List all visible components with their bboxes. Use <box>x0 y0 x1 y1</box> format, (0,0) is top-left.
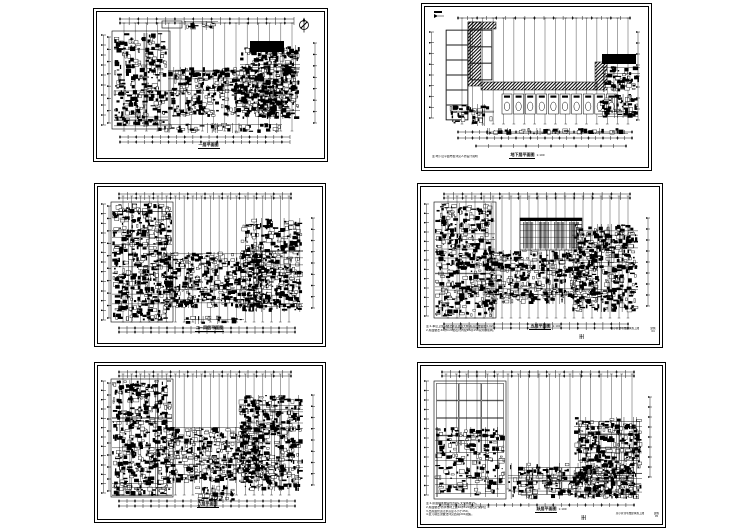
first-floor-plan-drawing <box>98 13 323 157</box>
drawing-title-text: 二~四层平面图 <box>195 325 224 332</box>
titleblock-sheet-number: 建施 05 <box>650 512 663 519</box>
drawing-note: 注:1.本层卫生间做法详见建施大样,标高比楼面低0.020。 2.屋面做法:40… <box>426 325 502 333</box>
drawing-note: 注:地下层平面布置详见人防设计说明 <box>432 155 486 159</box>
drawing-title-text: 地下层平面图 <box>509 152 535 159</box>
drawing-title: 跃层平面图1:100 <box>506 506 596 513</box>
fifth-floor-plan-drawing <box>422 188 658 343</box>
exit-arrow-icon <box>434 11 444 18</box>
sheet-floors-2-4-plan: 二~四层平面图 <box>94 183 326 347</box>
drawing-scale: 1:100 <box>536 153 544 157</box>
drawing-title-text: 五层平面图 <box>529 323 551 330</box>
drawing-title: 二~四层平面图 <box>165 325 255 332</box>
titleblock-sheet-number: 建施 04 <box>646 327 660 334</box>
basement-floor-plan-drawing <box>426 8 647 166</box>
drawing-title: 五层平面图1:100 <box>500 323 590 330</box>
drawing-title-text: 跃层平面图 <box>535 506 557 513</box>
sheet-basement-floor-plan: 注:地下层平面布置详见人防设计说明 地下层平面图1:100 <box>421 3 652 171</box>
north-arrow-icon <box>300 18 309 33</box>
cad-drawing-montage: 一层平面图 注:地下层平面布置详见人防设计说明 地下层平面图1:100 二~四层… <box>0 0 749 530</box>
drawing-title: 六层平面图 <box>163 501 253 508</box>
drawing-title: 一层平面图 <box>164 142 254 149</box>
sheet-first-floor-plan: 一层平面图 <box>93 8 328 162</box>
sheet-sixth-floor-plan: 六层平面图 <box>94 362 326 523</box>
top-floor-plan-drawing <box>422 367 661 523</box>
drawing-title-text: 六层平面图 <box>197 501 219 508</box>
floors-2-4-plan-drawing <box>99 188 321 342</box>
drawing-title: 地下层平面图1:100 <box>482 152 572 159</box>
sixth-floor-plan-drawing <box>99 367 321 518</box>
sheet-fifth-floor-plan: 注:1.本层卫生间做法详见建施大样,标高比楼面低0.020。 2.屋面做法:40… <box>417 183 663 348</box>
drawing-note: 注:1.屋面排水坡度均为2%,天沟纵坡1%。 2.屋面做法:防水卷材上做40厚C… <box>426 502 512 517</box>
drawing-title-text: 一层平面图 <box>198 142 220 149</box>
drawing-scale: 1:100 <box>552 324 560 328</box>
drawing-scale: 1:100 <box>558 507 566 511</box>
titleblock-project: 某小区住宅楼建筑施工图 <box>612 512 648 515</box>
titleblock-project: 某小区住宅楼建筑施工图 <box>606 327 644 330</box>
sheet-top-floor-plan: 注:1.屋面排水坡度均为2%,天沟纵坡1%。 2.屋面做法:防水卷材上做40厚C… <box>417 362 666 528</box>
